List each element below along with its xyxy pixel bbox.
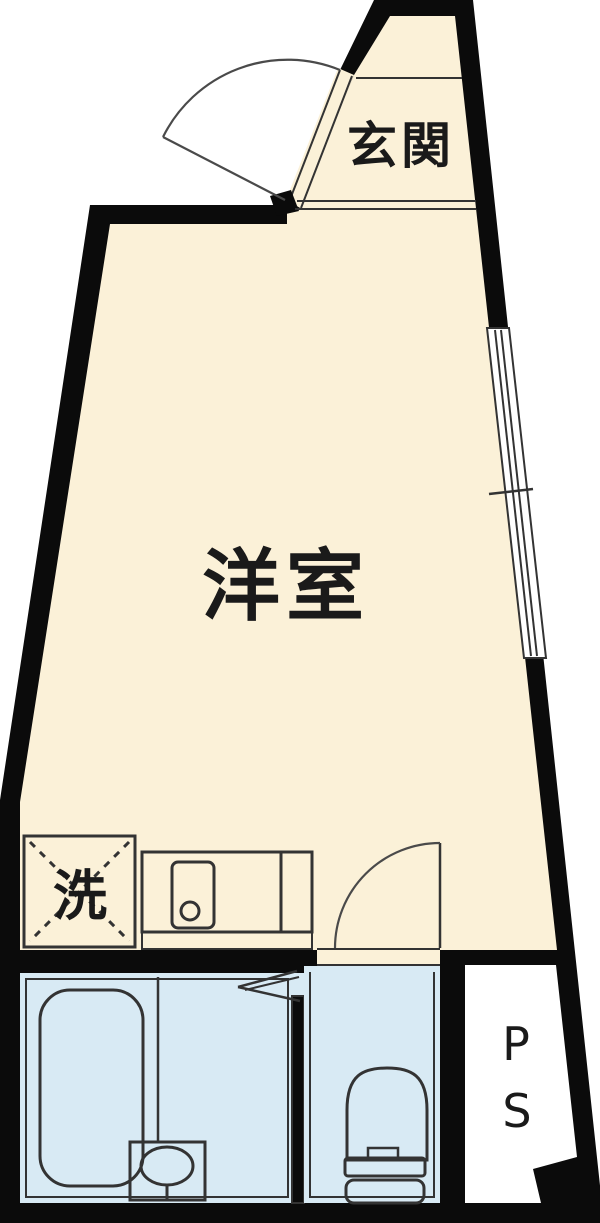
pipe-space-label-s: S — [502, 1084, 531, 1138]
toilet-doorway-threshold — [317, 948, 440, 966]
laundry-label: 洗 — [53, 865, 107, 928]
western-room-label: 洋室 — [202, 542, 370, 632]
genkan-label: 玄関 — [347, 117, 455, 175]
floor-plan-canvas: 洗 P S 玄 — [0, 0, 600, 1223]
floor-plan: 洗 P S 玄 — [0, 0, 600, 1223]
toilet-room-floor — [304, 966, 440, 1203]
pipe-space-label-p: P — [502, 1017, 530, 1071]
bathroom — [20, 973, 292, 1203]
toilet-room — [304, 966, 440, 1203]
bathroom-floor — [20, 973, 292, 1203]
